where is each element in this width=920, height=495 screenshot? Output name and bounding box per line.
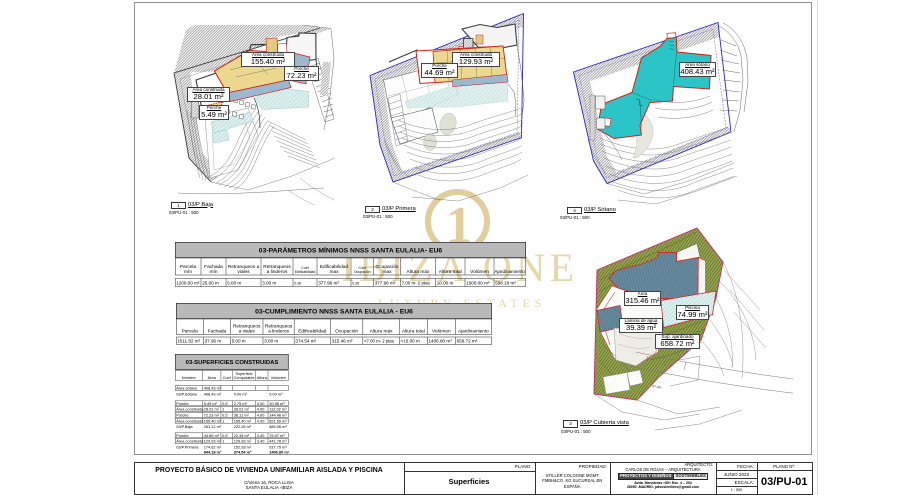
svg-text:7.00 m- 2 ptas: 7.00 m- 2 ptas (402, 281, 431, 286)
svg-text:377.96 m²: 377.96 m² (375, 281, 396, 286)
svg-text:3.00 m: 3.00 m (262, 281, 276, 286)
svg-text:37.99: 37.99 (652, 384, 661, 390)
svg-text:<10.00 m: <10.00 m (401, 338, 420, 343)
svg-text:Volúmen: Volúmen (432, 328, 451, 334)
svg-text:Retranqueos a: Retranqueos a (228, 264, 260, 270)
svg-text:222.26 m²: 222.26 m² (234, 424, 252, 429)
svg-text:408.43 m²: 408.43 m² (204, 386, 222, 391)
svg-text:Volúmen: Volúmen (470, 269, 489, 275)
svg-text:Retranqueos: Retranqueos (263, 264, 291, 270)
svg-text:1: 1 (222, 439, 224, 444)
svg-text:Edificabilidad: Edificabilidad (320, 264, 349, 270)
svg-text:Parcela: Parcela (182, 328, 199, 334)
svg-text:1: 1 (222, 407, 224, 412)
svg-text:Fachada: Fachada (204, 264, 223, 270)
svg-text:a linderos: a linderos (267, 269, 288, 275)
svg-text:Ajardinamiento: Ajardinamiento (494, 269, 525, 274)
svg-text:03/P.Primera: 03/P.Primera (176, 445, 199, 450)
svg-text:Ajardinamiento: Ajardinamiento (458, 328, 489, 333)
svg-text:28.01 m²: 28.01 m² (204, 407, 220, 412)
svg-text:mín: mín (184, 269, 192, 275)
svg-text:03-PARÁMETROS MÍNIMOS NNSS SAN: 03-PARÁMETROS MÍNIMOS NNSS SANTA EULALIA… (259, 245, 443, 254)
svg-text:25.00 m: 25.00 m (202, 281, 219, 286)
svg-text:Altura: Altura (257, 375, 268, 380)
svg-text:<7.00 m- 2 ptas: <7.00 m- 2 ptas (364, 338, 394, 343)
svg-text:3.00 m: 3.00 m (264, 338, 278, 343)
svg-text:3.40: 3.40 (257, 439, 265, 444)
svg-text:Altura total: Altura total (439, 269, 462, 275)
svg-text:Volúmen: Volúmen (271, 375, 286, 380)
svg-text:Altura total: Altura total (402, 328, 425, 334)
svg-text:36.11 m²: 36.11 m² (234, 413, 250, 418)
svg-text:72.23 m²: 72.23 m² (204, 413, 220, 418)
svg-text:4.00: 4.00 (257, 401, 265, 406)
svg-text:112.02 m³: 112.02 m³ (269, 407, 287, 412)
svg-text:5.00 m: 5.00 m (232, 338, 246, 343)
svg-text:4.00: 4.00 (257, 407, 265, 412)
svg-text:315.46 m²: 315.46 m² (332, 338, 353, 343)
svg-text:1511.82 m²: 1511.82 m² (177, 338, 200, 343)
svg-text:a linderos: a linderos (268, 328, 289, 334)
svg-text:5.00 m: 5.00 m (227, 281, 241, 286)
svg-text:261.12 m²: 261.12 m² (204, 424, 222, 429)
svg-text:1406.80 m³: 1406.80 m³ (429, 338, 453, 343)
svg-text:Porche: Porche (176, 401, 188, 406)
svg-text:28.01 m²: 28.01 m² (234, 407, 250, 412)
svg-text:03-CUMPLIMIENTO NNSS SANTA EUL: 03-CUMPLIMIENTO NNSS SANTA EULALIA - EU6 (255, 308, 413, 315)
svg-text:Coef: Coef (223, 375, 232, 380)
svg-text:1406.80 m³: 1406.80 m³ (269, 450, 290, 455)
svg-text:Ocupación: Ocupación (335, 328, 358, 334)
svg-text:Edificabilidad: Edificabilidad (298, 328, 327, 334)
svg-text:Área construida: Área construida (176, 418, 204, 423)
svg-text:658.72 m²: 658.72 m² (457, 338, 478, 343)
svg-text:144.46 m³: 144.46 m³ (269, 413, 287, 418)
svg-text:a viales: a viales (239, 328, 256, 334)
svg-text:Computable: Computable (234, 375, 255, 380)
svg-text:Ocupación: Ocupación (376, 264, 399, 270)
svg-text:Fachada: Fachada (208, 328, 227, 334)
svg-text:1: 1 (222, 418, 224, 423)
svg-text:889.06 m³: 889.06 m³ (269, 424, 287, 429)
svg-text:Altura máx: Altura máx (370, 328, 394, 334)
svg-text:75.97 m³: 75.97 m³ (269, 433, 285, 438)
svg-text:0.5: 0.5 (222, 413, 227, 418)
svg-text:Ocupación: Ocupación (354, 270, 371, 274)
svg-text:37.96 m: 37.96 m (205, 338, 222, 343)
svg-text:Retranqueos: Retranqueos (233, 323, 261, 329)
svg-text:03/P.Baja: 03/P.Baja (176, 424, 193, 429)
svg-text:4.00: 4.00 (257, 413, 265, 418)
svg-text:Edificabilidad: Edificabilidad (295, 270, 316, 274)
svg-text:374.54 m²: 374.54 m² (295, 338, 316, 343)
svg-text:1500.00 m³: 1500.00 m³ (466, 281, 490, 286)
svg-text:mín: mín (210, 269, 218, 275)
svg-text:Porche: Porche (176, 433, 188, 438)
svg-text:Área construida: Área construida (176, 439, 204, 444)
svg-text:844.18 m²: 844.18 m² (204, 450, 222, 455)
svg-text:4.00: 4.00 (257, 418, 265, 423)
svg-text:Parcela: Parcela (180, 264, 197, 270)
svg-text:0.28: 0.28 (294, 282, 301, 286)
svg-text:1200.00 m²: 1200.00 m² (176, 281, 200, 286)
svg-text:44.69 m²: 44.69 m² (204, 433, 220, 438)
svg-text:129.93 m²: 129.93 m² (234, 439, 252, 444)
svg-text:22.34 m²: 22.34 m² (234, 433, 250, 438)
svg-text:Nombre: Nombre (182, 375, 196, 380)
svg-text:Área: Área (208, 375, 217, 380)
svg-text:155.40 m²: 155.40 m² (204, 418, 222, 423)
svg-text:max: max (382, 270, 392, 275)
svg-text:10.00 m: 10.00 m (437, 281, 454, 286)
svg-text:377.96 m²: 377.96 m² (318, 281, 339, 286)
svg-text:03-SUPERFICIES CONSTRUIDAS: 03-SUPERFICIES CONSTRUIDAS (186, 360, 279, 366)
svg-text:Área sótano: Área sótano (176, 386, 197, 391)
svg-text:0.5: 0.5 (222, 433, 227, 438)
svg-text:03/P.Sótano: 03/P.Sótano (176, 392, 197, 397)
svg-text:viales: viales (237, 269, 250, 275)
svg-text:10.98 m³: 10.98 m³ (269, 401, 285, 406)
svg-text:441.78 m³: 441.78 m³ (269, 439, 287, 444)
svg-text:Altura máx: Altura máx (407, 269, 431, 275)
svg-text:Área construida: Área construida (176, 407, 204, 412)
svg-text:155.40 m²: 155.40 m² (234, 418, 252, 423)
svg-text:max: max (329, 270, 339, 275)
svg-text:0.00 m²: 0.00 m² (234, 392, 248, 397)
svg-text:0.5: 0.5 (222, 401, 227, 406)
svg-text:0.00 m³: 0.00 m³ (269, 392, 283, 397)
svg-text:3.40: 3.40 (257, 433, 265, 438)
svg-text:5.49 m²: 5.49 m² (204, 401, 218, 406)
svg-text:Porche: Porche (176, 413, 188, 418)
svg-text:598.18 m²: 598.18 m² (495, 281, 516, 286)
svg-text:2.75 m²: 2.75 m² (234, 401, 248, 406)
svg-text:Retranqueos: Retranqueos (265, 323, 293, 329)
svg-text:129.93 m²: 129.93 m² (204, 439, 222, 444)
svg-text:408.43 m²: 408.43 m² (204, 392, 222, 397)
svg-text:374.54 m²: 374.54 m² (234, 450, 252, 455)
svg-text:621.59 m³: 621.59 m³ (269, 418, 287, 423)
svg-text:0.28: 0.28 (352, 282, 359, 286)
